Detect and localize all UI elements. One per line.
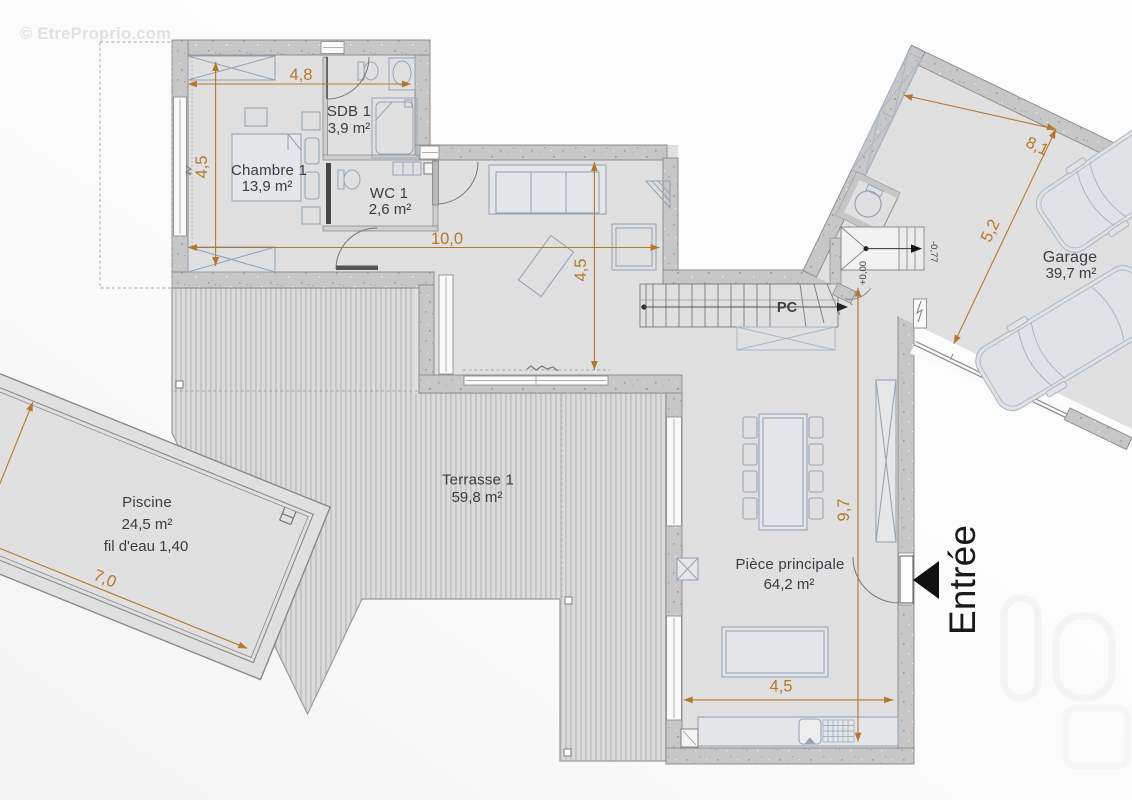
svg-text:Garage: Garage — [1043, 249, 1098, 266]
svg-text:+0,00: +0,00 — [858, 261, 869, 285]
svg-text:24,5 m²: 24,5 m² — [122, 516, 173, 533]
svg-text:64,2 m²: 64,2 m² — [764, 576, 815, 593]
svg-text:Entrée: Entrée — [942, 525, 983, 635]
svg-text:3,9 m²: 3,9 m² — [328, 120, 371, 137]
svg-text:-0,77: -0,77 — [928, 241, 939, 263]
svg-text:13,9 m²: 13,9 m² — [242, 178, 293, 195]
svg-text:SDB 1: SDB 1 — [327, 103, 371, 120]
svg-text:WC 1: WC 1 — [370, 185, 408, 202]
svg-text:Piscine: Piscine — [122, 494, 172, 511]
svg-text:Chambre 1: Chambre 1 — [231, 162, 307, 179]
svg-text:PC: PC — [777, 300, 798, 316]
svg-text:39,7 m²: 39,7 m² — [1046, 265, 1097, 282]
svg-text:4,8: 4,8 — [290, 66, 313, 84]
svg-text:© EtreProprio.com: © EtreProprio.com — [20, 25, 171, 43]
svg-text:4,5: 4,5 — [572, 259, 590, 282]
svg-text:Pièce principale: Pièce principale — [735, 556, 844, 573]
svg-text:4,5: 4,5 — [770, 678, 793, 696]
svg-text:10,0: 10,0 — [431, 230, 463, 248]
svg-text:59,8 m²: 59,8 m² — [452, 489, 503, 506]
svg-text:fil d'eau 1,40: fil d'eau 1,40 — [104, 538, 189, 555]
svg-text:2,6 m²: 2,6 m² — [369, 201, 412, 218]
svg-text:Terrasse 1: Terrasse 1 — [442, 472, 514, 489]
svg-text:4,5: 4,5 — [193, 156, 211, 179]
svg-text:9,7: 9,7 — [835, 499, 853, 522]
